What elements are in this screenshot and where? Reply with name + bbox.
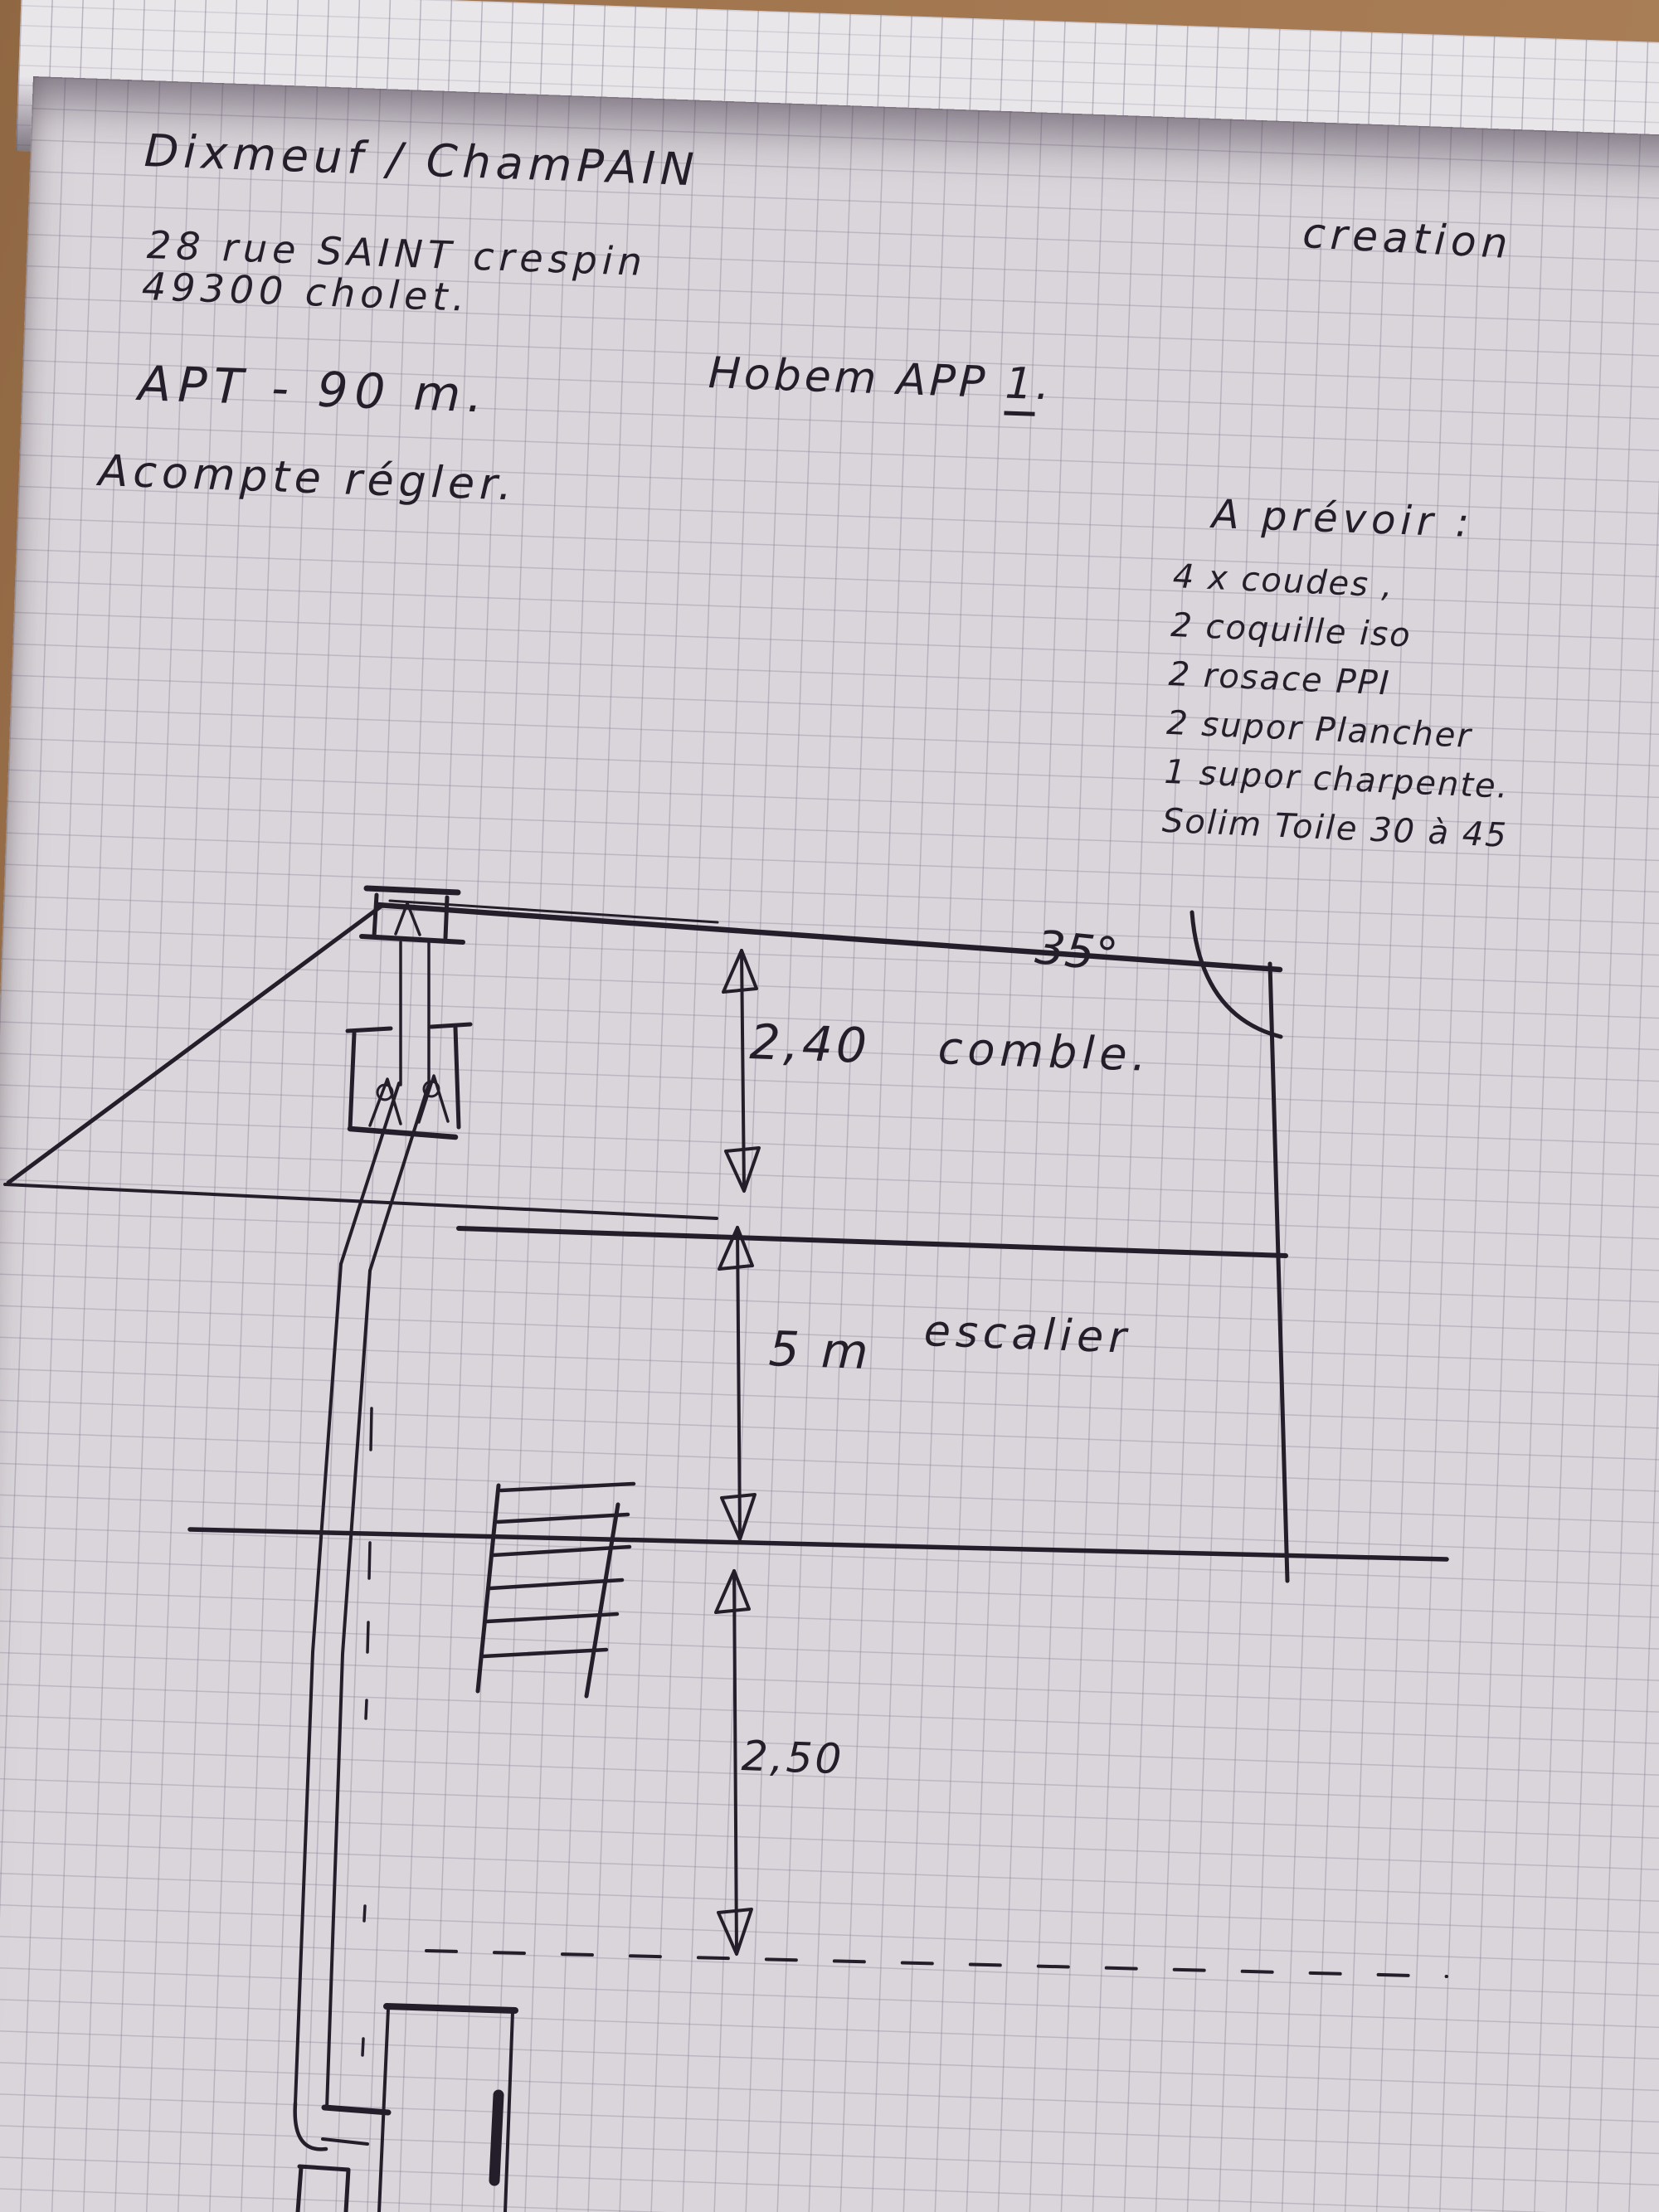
notebook-photo: Dixmeuf / ChamPAIN 28 rue SAINT crespin … — [0, 0, 1659, 2212]
unit-suffix: . — [1035, 360, 1054, 411]
todo-item: 2 coquille iso — [1170, 606, 1517, 659]
ground-height-label: 2,50 — [741, 1732, 844, 1783]
unit-prefix: Hobem APP — [708, 348, 1006, 408]
unit-number: 1 — [1004, 358, 1036, 416]
stairs-height-label: 5 m — [768, 1320, 873, 1380]
comble-name-label: comble. — [937, 1022, 1152, 1082]
todo-title: A prévoir : — [1211, 491, 1475, 547]
todo-item: 2 rosace PPI — [1168, 655, 1515, 708]
stairs-name-label: escalier — [923, 1306, 1132, 1364]
comble-height-label: 2,40 — [749, 1014, 871, 1074]
todo-item: 1 supor charpente. — [1164, 753, 1511, 806]
todo-item: Solim Toile 30 à 45 — [1161, 802, 1509, 855]
todo-list: 4 x coudes , 2 coquille iso 2 rosace PPI… — [1161, 557, 1520, 866]
todo-item: 2 supor Plancher — [1165, 704, 1513, 757]
roof-angle-label: 35° — [1033, 921, 1121, 983]
